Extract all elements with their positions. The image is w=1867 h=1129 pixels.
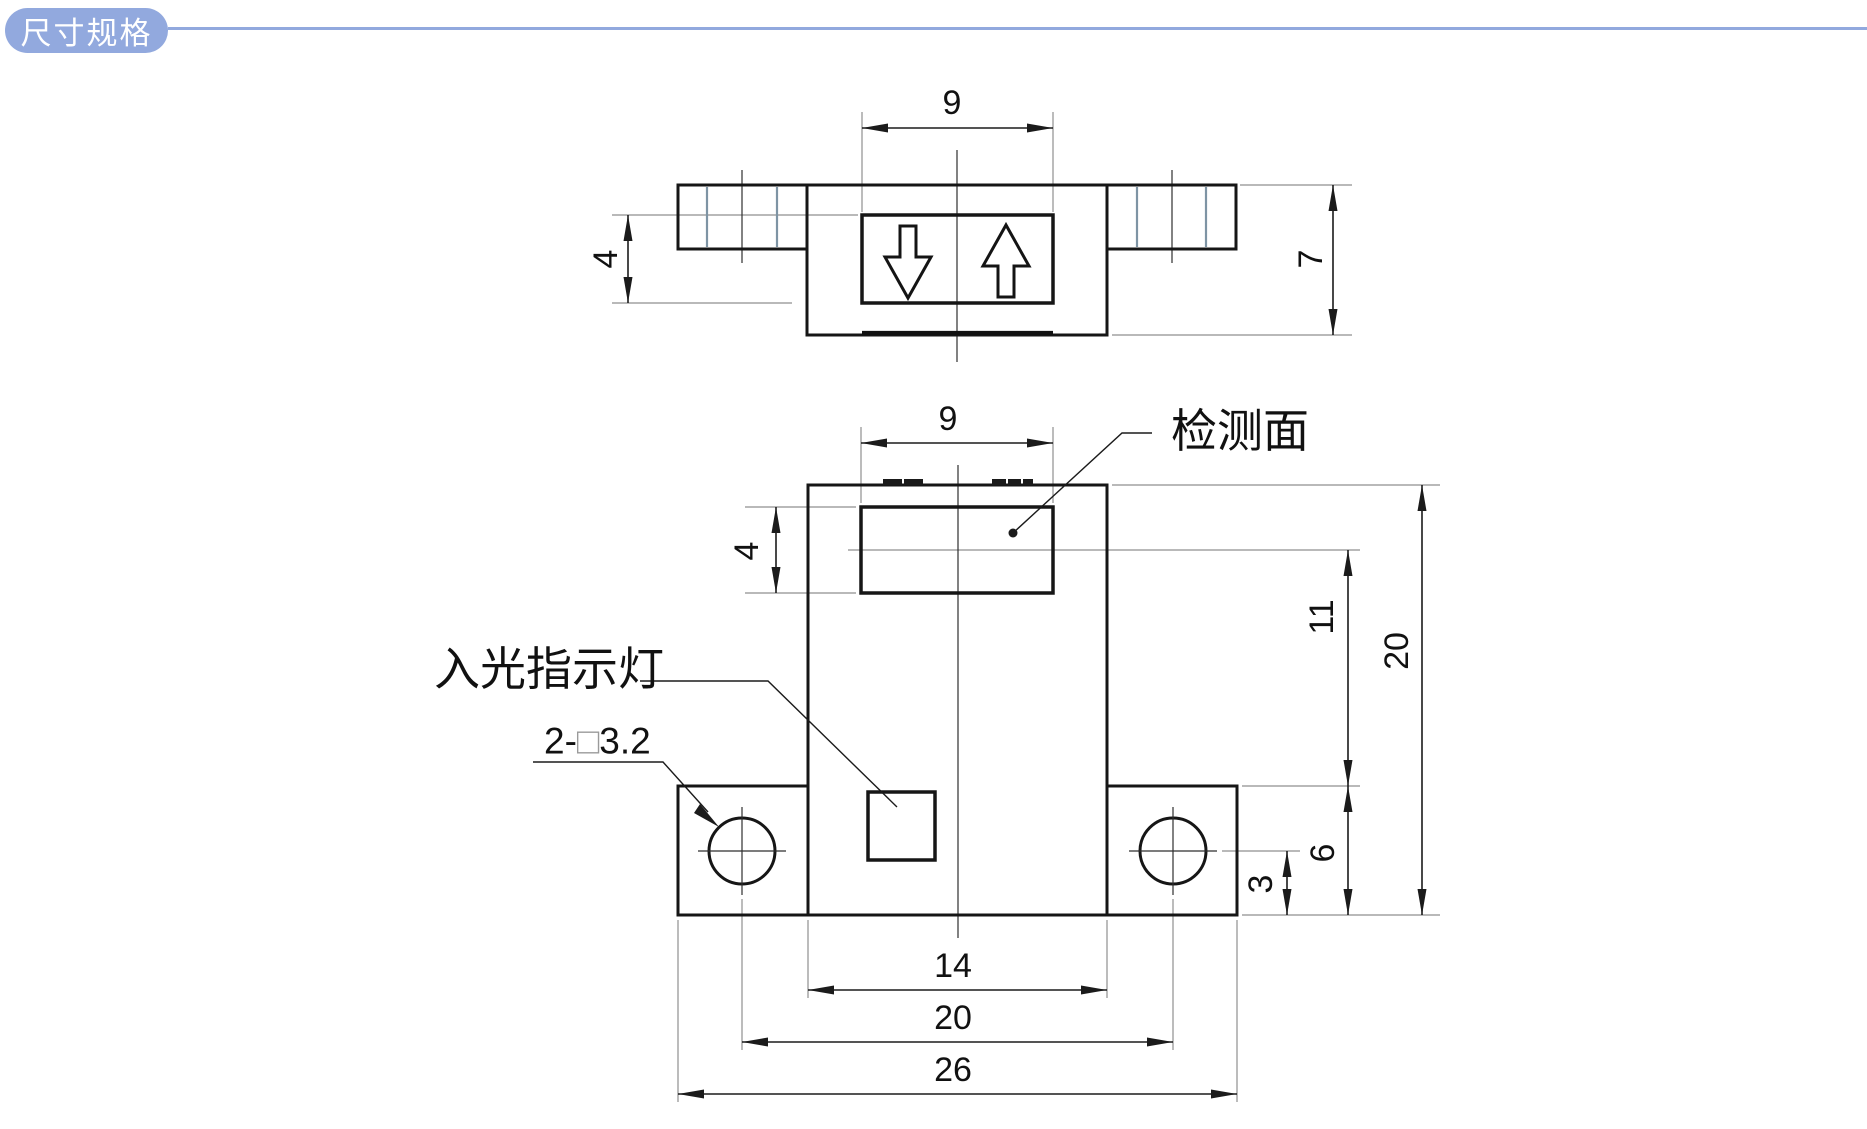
leader-mount-holes (533, 762, 719, 827)
dim-hole-to-bottom: 3 (1244, 872, 1278, 897)
mounting-hole-right (1129, 807, 1217, 895)
dim-overall-width: 26 (931, 1053, 975, 1087)
label-light-indicator: 入光指示灯 (434, 646, 664, 692)
dim-hole-spacing: 20 (931, 1001, 975, 1035)
label-mount-holes-suffix: 3.2 (599, 721, 650, 762)
dim-axis-to-flange: 11 (1305, 596, 1339, 637)
dimension-spec-page: 尺寸规格 (0, 0, 1867, 1129)
label-mount-holes-prefix: 2- (544, 721, 577, 762)
dim-front-window-width: 9 (936, 402, 961, 436)
dim-front-window-height: 4 (730, 539, 764, 564)
light-indicator-square (868, 792, 935, 860)
front-view (533, 427, 1440, 1102)
top-view (612, 112, 1352, 362)
dim-body-width: 14 (931, 949, 975, 983)
label-detection-face: 检测面 (1171, 408, 1309, 454)
label-mount-holes: 2-□3.2 (544, 723, 651, 760)
label-mount-holes-box-glyph: □ (577, 721, 599, 762)
dim-overall-height: 20 (1380, 629, 1414, 673)
up-arrow-icon (983, 225, 1029, 297)
dim-flange-height: 6 (1306, 841, 1340, 866)
dim-top-window-height: 4 (589, 247, 623, 272)
dim-top-window-width: 9 (940, 86, 965, 120)
leader-dot (1009, 529, 1018, 538)
down-arrow-icon (885, 226, 931, 298)
dim-top-body-height: 7 (1294, 247, 1328, 272)
leader-arrowhead (694, 804, 719, 827)
